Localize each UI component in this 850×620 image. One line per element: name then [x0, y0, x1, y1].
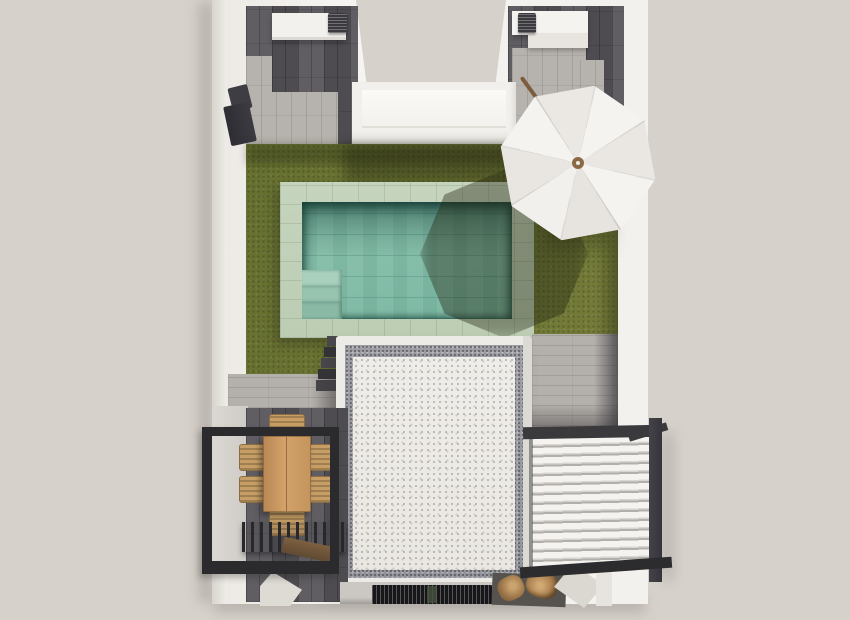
louver-roof [532, 435, 650, 568]
umbrella-hub-dot [576, 161, 580, 165]
top-notch [356, 0, 506, 84]
roof-field [353, 357, 515, 570]
architectural-render [0, 0, 850, 620]
pool-step-1 [302, 270, 342, 286]
skylight-sill-line [362, 126, 506, 128]
left-patio-stone-path-2 [246, 92, 338, 146]
louver-left-seam [529, 437, 533, 567]
ac-unit-left [328, 13, 347, 33]
ac-unit-right [518, 13, 536, 33]
pool-step-2 [302, 286, 342, 302]
pool-step-3 [302, 302, 342, 319]
pergola-frame [202, 427, 339, 574]
drain-grate-green-stripe [427, 586, 436, 603]
corner-parapet-post [596, 572, 612, 606]
right-planter-box-front [528, 33, 588, 48]
